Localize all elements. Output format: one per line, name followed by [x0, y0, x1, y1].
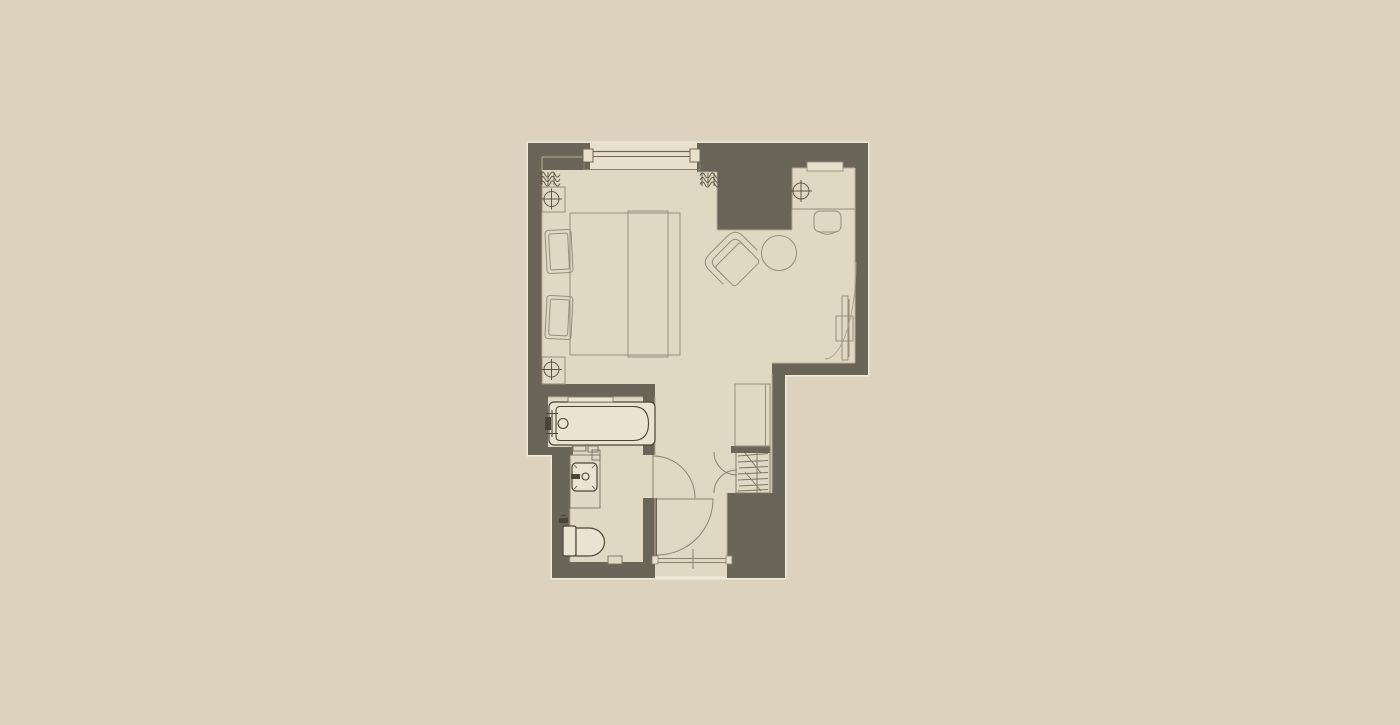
wall-bathroom-top	[528, 384, 655, 397]
toilet-tank	[563, 526, 576, 556]
wall-entry-right-block	[727, 493, 785, 578]
window-end-block-left	[583, 149, 593, 162]
tub-shelf	[568, 397, 613, 402]
bathtub	[545, 397, 655, 452]
building-outline	[528, 143, 868, 578]
wall-hall-right	[772, 375, 785, 495]
wall-bathroom-bottom	[552, 562, 655, 578]
wall-bathroom-step	[528, 447, 573, 455]
wall-bathroom-left-lower	[552, 455, 570, 578]
desk-shelf	[807, 162, 843, 171]
toilet-bowl	[576, 528, 605, 556]
wall-left	[528, 143, 542, 384]
window-end-block-right	[690, 149, 700, 162]
wall-niche	[608, 556, 622, 564]
building	[528, 143, 868, 578]
floor-plan	[0, 0, 1400, 725]
